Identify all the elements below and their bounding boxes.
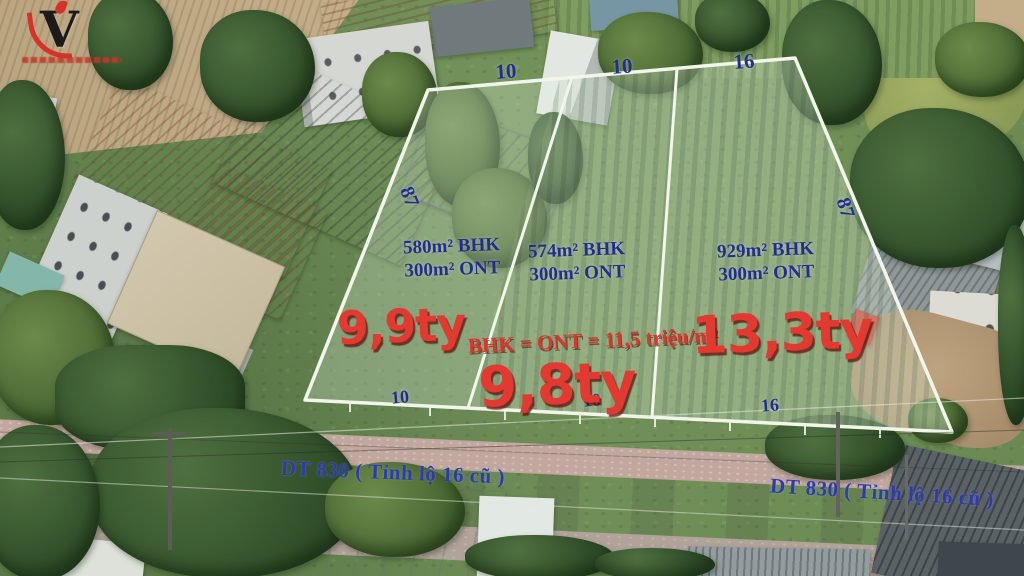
plot3-area-bhk: 929m² BHK (717, 237, 815, 264)
plot3-area-label: 929m² BHK 300m² ONT (717, 237, 816, 287)
plot2-price-label: 9,8ty (477, 349, 637, 423)
plot1-bottom-width-label: 10 (390, 386, 410, 409)
logo-caption (22, 57, 122, 63)
agency-logo: V (22, 4, 137, 66)
plot3-price-label: 13,3ty (690, 299, 873, 369)
plot2-area-bhk: 574m² BHK (528, 237, 626, 264)
plot1-area-label: 580m² BHK 300m² ONT (403, 233, 502, 283)
plot3-bottom-width-label: 16 (760, 394, 779, 417)
plot3-area-ont: 300m² ONT (718, 260, 816, 287)
aerial-photo-scene: 10 10 16 87 87 580m² BHK 300m² ONT 574m²… (0, 0, 1024, 576)
plot2-top-width-label: 10 (611, 53, 634, 80)
plot1-top-width-label: 10 (495, 58, 518, 85)
plot2-area-ont: 300m² ONT (529, 260, 627, 287)
plot2-area-label: 574m² BHK 300m² ONT (528, 237, 627, 287)
plot1-price-label: 9,9ty (336, 296, 466, 357)
plot3-top-width-label: 16 (733, 48, 756, 75)
plot1-area-ont: 300m² ONT (404, 256, 502, 283)
plot1-area-bhk: 580m² BHK (403, 233, 501, 260)
